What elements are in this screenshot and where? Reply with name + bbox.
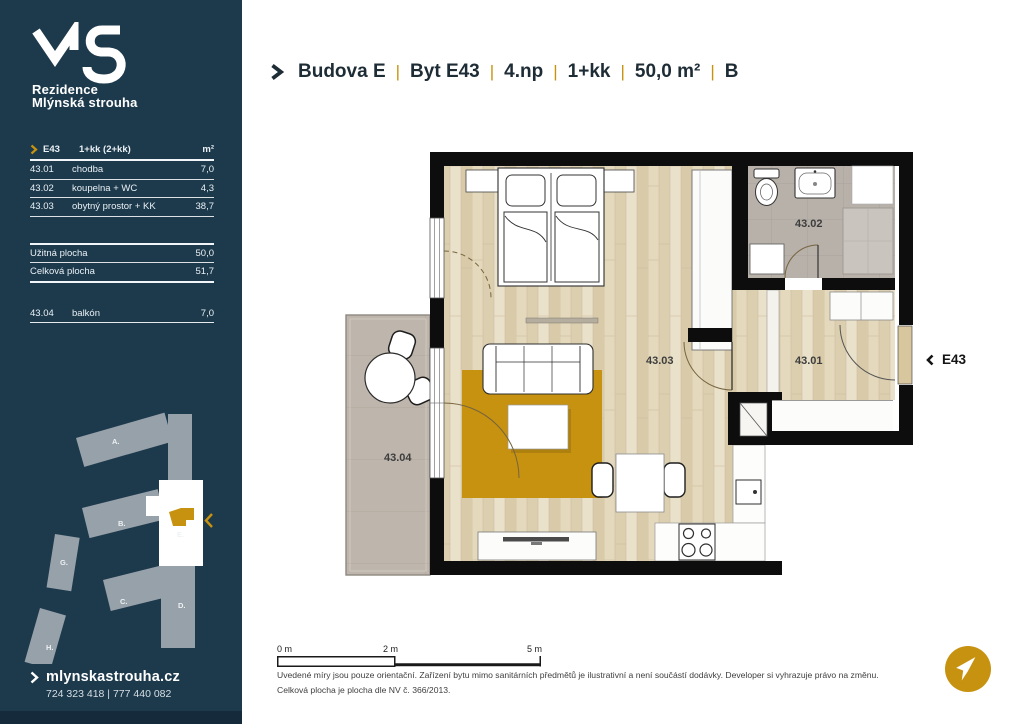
separator: | [620,62,624,82]
cooktop [679,524,715,560]
wardrobe [692,170,732,350]
room-label-living: 43.03 [646,355,674,367]
unit-table: E43 1+kk (2+kk) m² 43.01 chodba 7,0 43.0… [30,140,214,323]
scale-2m: 2 m [383,644,398,654]
table-row: 43.01 chodba 7,0 [30,161,214,180]
sofa [483,344,593,394]
building-g-label: G. [60,558,68,567]
nightstand-right [604,170,634,192]
table-row: Užitná plocha 50,0 [30,245,214,264]
disclaimer-line2: Celková plocha je plocha dle NV č. 366/2… [277,683,879,698]
balcony-door [430,348,444,478]
dining-chair [664,463,685,497]
chevron-right-icon [30,671,39,684]
summary-area: 50,0 [196,248,215,259]
room-name: koupelna + WC [72,183,201,194]
room-area: 4,3 [201,183,214,194]
building-b-label: B. [118,519,126,528]
dining-chair [592,463,613,497]
table-row: 43.04 balkón 7,0 [30,305,214,324]
nightstand-left [466,170,498,192]
room-label-bath: 43.02 [795,218,823,230]
separator: | [396,62,400,82]
disclaimer: Uvedené míry jsou pouze orientační. Zaří… [277,668,879,698]
summary-area: 51,7 [196,266,215,277]
building-e-highlight-area [146,496,162,516]
entrance-label: E43 [942,352,966,367]
separator: | [710,62,714,82]
room-area: 7,0 [201,308,214,319]
building-c-label: C. [120,597,128,606]
pillow [506,175,545,206]
unit-layout: 1+kk (2+kk) [79,144,202,155]
building-h [25,608,66,664]
separator: | [490,62,494,82]
scale-bar: 0 m 2 m 5 m [277,644,547,670]
navigation-arrow-button[interactable] [945,646,991,692]
entrance-marker: E43 [926,352,966,367]
website-link[interactable]: mlynskastrouha.cz [46,669,180,685]
sidebar: Rezidence Mlýnská strouha E43 1+kk (2+kk… [0,0,242,724]
separator: | [553,62,557,82]
title-unit: Byt E43 [410,61,480,83]
room-area: 7,0 [201,164,214,175]
niche [852,166,893,204]
chevron-right-icon [30,144,38,155]
room-code: 43.03 [30,201,72,212]
room-code: 43.04 [30,308,72,319]
balcony-round-table [365,353,415,403]
duvet [504,212,547,282]
building-h-label: H. [46,643,54,652]
area-unit-label: m² [202,144,214,155]
room-name: chodba [72,164,201,175]
hall-cabinet [830,292,893,320]
washing-machine [750,244,784,274]
building-e-label: E. [177,530,184,539]
window [430,218,444,298]
ms-logo-icon [30,22,142,84]
floor-plan: 43.03 43.01 43.02 43.04 [340,148,925,578]
disclaimer-line1: Uvedené míry jsou pouze orientační. Zaří… [277,668,879,683]
extras: 43.04 balkón 7,0 [30,305,214,324]
room-area: 38,7 [196,201,215,212]
summary-name: Užitná plocha [30,248,196,259]
phone-numbers: 724 323 418 | 777 440 082 [46,688,180,700]
title-building: Budova E [298,61,386,83]
table-row: 43.02 koupelna + WC 4,3 [30,180,214,199]
building-a-wing [168,414,192,484]
dining-table [616,454,664,512]
washbasin [795,168,835,198]
area-summary: Užitná plocha 50,0 Celková plocha 51,7 [30,243,214,283]
site-plan: A. B. G. C. D. H. E. [18,408,246,664]
chevron-left-icon [206,514,212,527]
pillow [557,175,596,206]
contact-block: mlynskastrouha.cz 724 323 418 | 777 440 … [30,669,180,700]
hall-wardrobe [772,400,893,431]
unit-table-header: E43 1+kk (2+kk) m² [30,140,214,161]
chevron-right-icon [270,63,284,81]
building-d-label: D. [178,601,186,610]
coffee-table [508,405,568,449]
room-label-hall: 43.01 [795,355,823,367]
chevron-left-icon [926,354,934,366]
title-floor: 4.np [504,61,543,83]
unit-code: E43 [43,144,79,155]
building-a [76,413,173,467]
room-name: obytný prostor + KK [72,201,196,212]
table-row: 43.03 obytný prostor + KK 38,7 [30,198,214,217]
sidebar-footer-strip [0,711,242,724]
tv-sideboard [478,532,596,560]
title-layout: 1+kk [568,61,611,83]
building-a-label: A. [112,437,120,446]
entrance-door [898,326,912,384]
page: Rezidence Mlýnská strouha E43 1+kk (2+kk… [0,0,1024,724]
double-bed [498,168,604,286]
page-title: Budova E | Byt E43 | 4.np | 1+kk | 50,0 … [270,61,739,83]
title-category: B [725,61,739,83]
paper-plane-icon [951,646,985,692]
room-name: balkón [72,308,201,319]
title-area: 50,0 m² [635,61,700,83]
tv [503,537,569,542]
scale-5m: 5 m [527,644,542,654]
table-row: Celková plocha 51,7 [30,263,214,283]
scale-0m: 0 m [277,644,292,654]
kitchen-sink [736,480,761,504]
room-code: 43.02 [30,183,72,194]
logo-line2: Mlýnská strouha [32,95,138,110]
radiator [526,318,598,323]
room-code: 43.01 [30,164,72,175]
toilet [754,169,779,206]
shaft [740,403,767,436]
room-label-balcony: 43.04 [384,452,412,464]
summary-name: Celková plocha [30,266,196,277]
